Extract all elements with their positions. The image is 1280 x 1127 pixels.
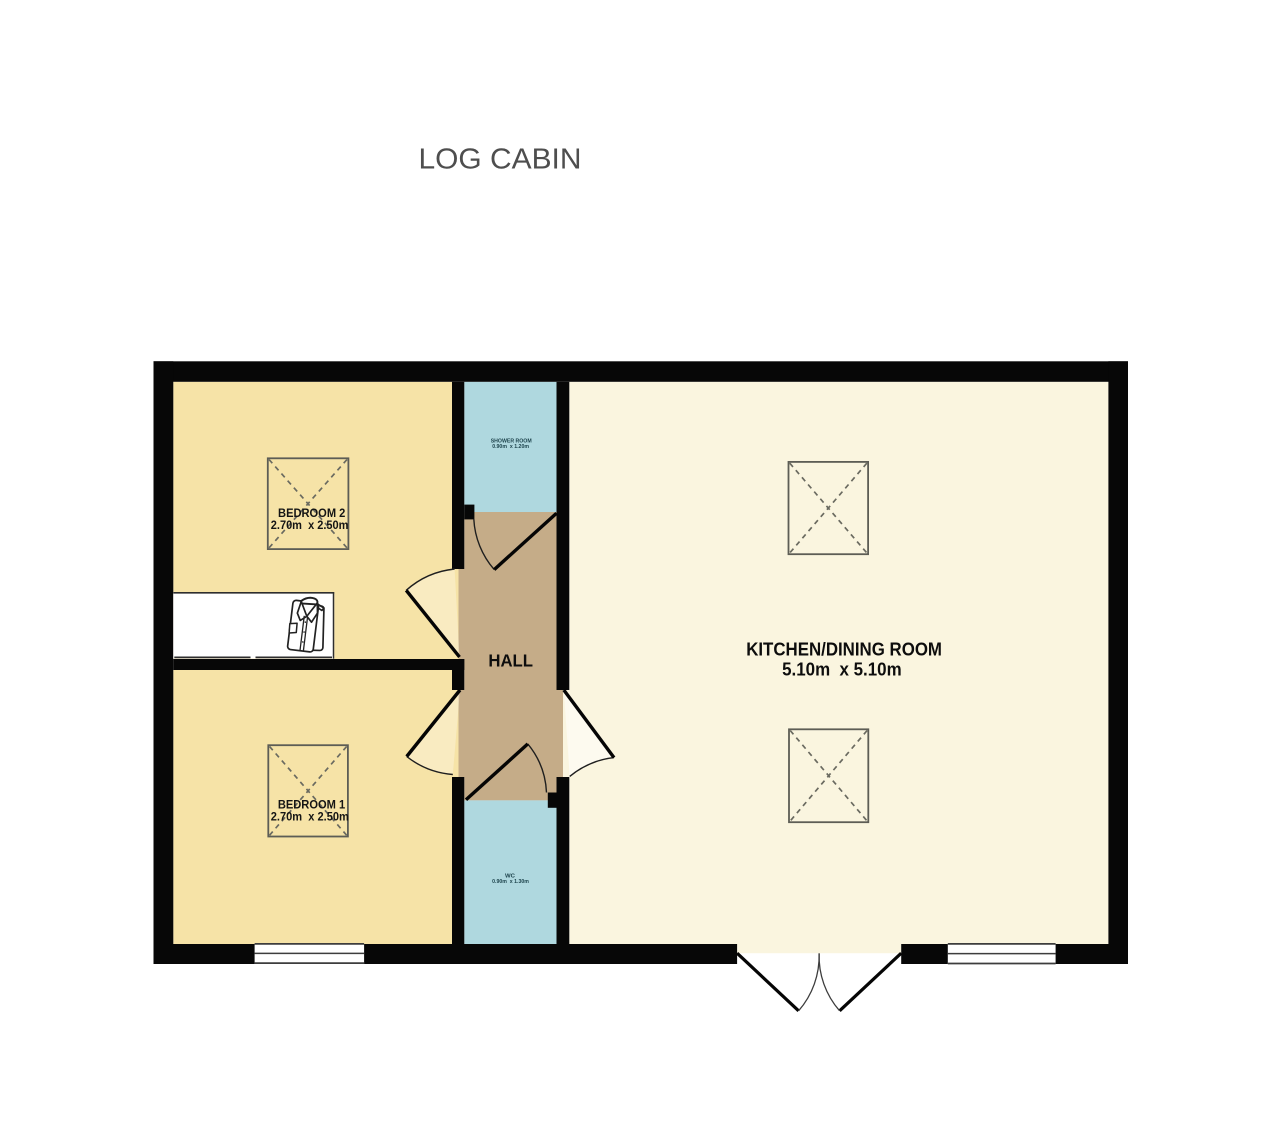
- svg-text:LOG CABIN: LOG CABIN: [419, 144, 582, 176]
- svg-text:5.10m x 5.10m: 5.10m x 5.10m: [782, 659, 902, 679]
- svg-text:0.90m x 1.20m: 0.90m x 1.20m: [492, 444, 529, 450]
- svg-text:2.70m x 2.50m: 2.70m x 2.50m: [271, 810, 349, 824]
- svg-text:KITCHEN/DINING ROOM: KITCHEN/DINING ROOM: [746, 639, 942, 659]
- svg-text:0.90m x 1.30m: 0.90m x 1.30m: [492, 879, 529, 885]
- svg-text:2.70m x 2.50m: 2.70m x 2.50m: [271, 518, 349, 532]
- svg-text:HALL: HALL: [488, 650, 533, 670]
